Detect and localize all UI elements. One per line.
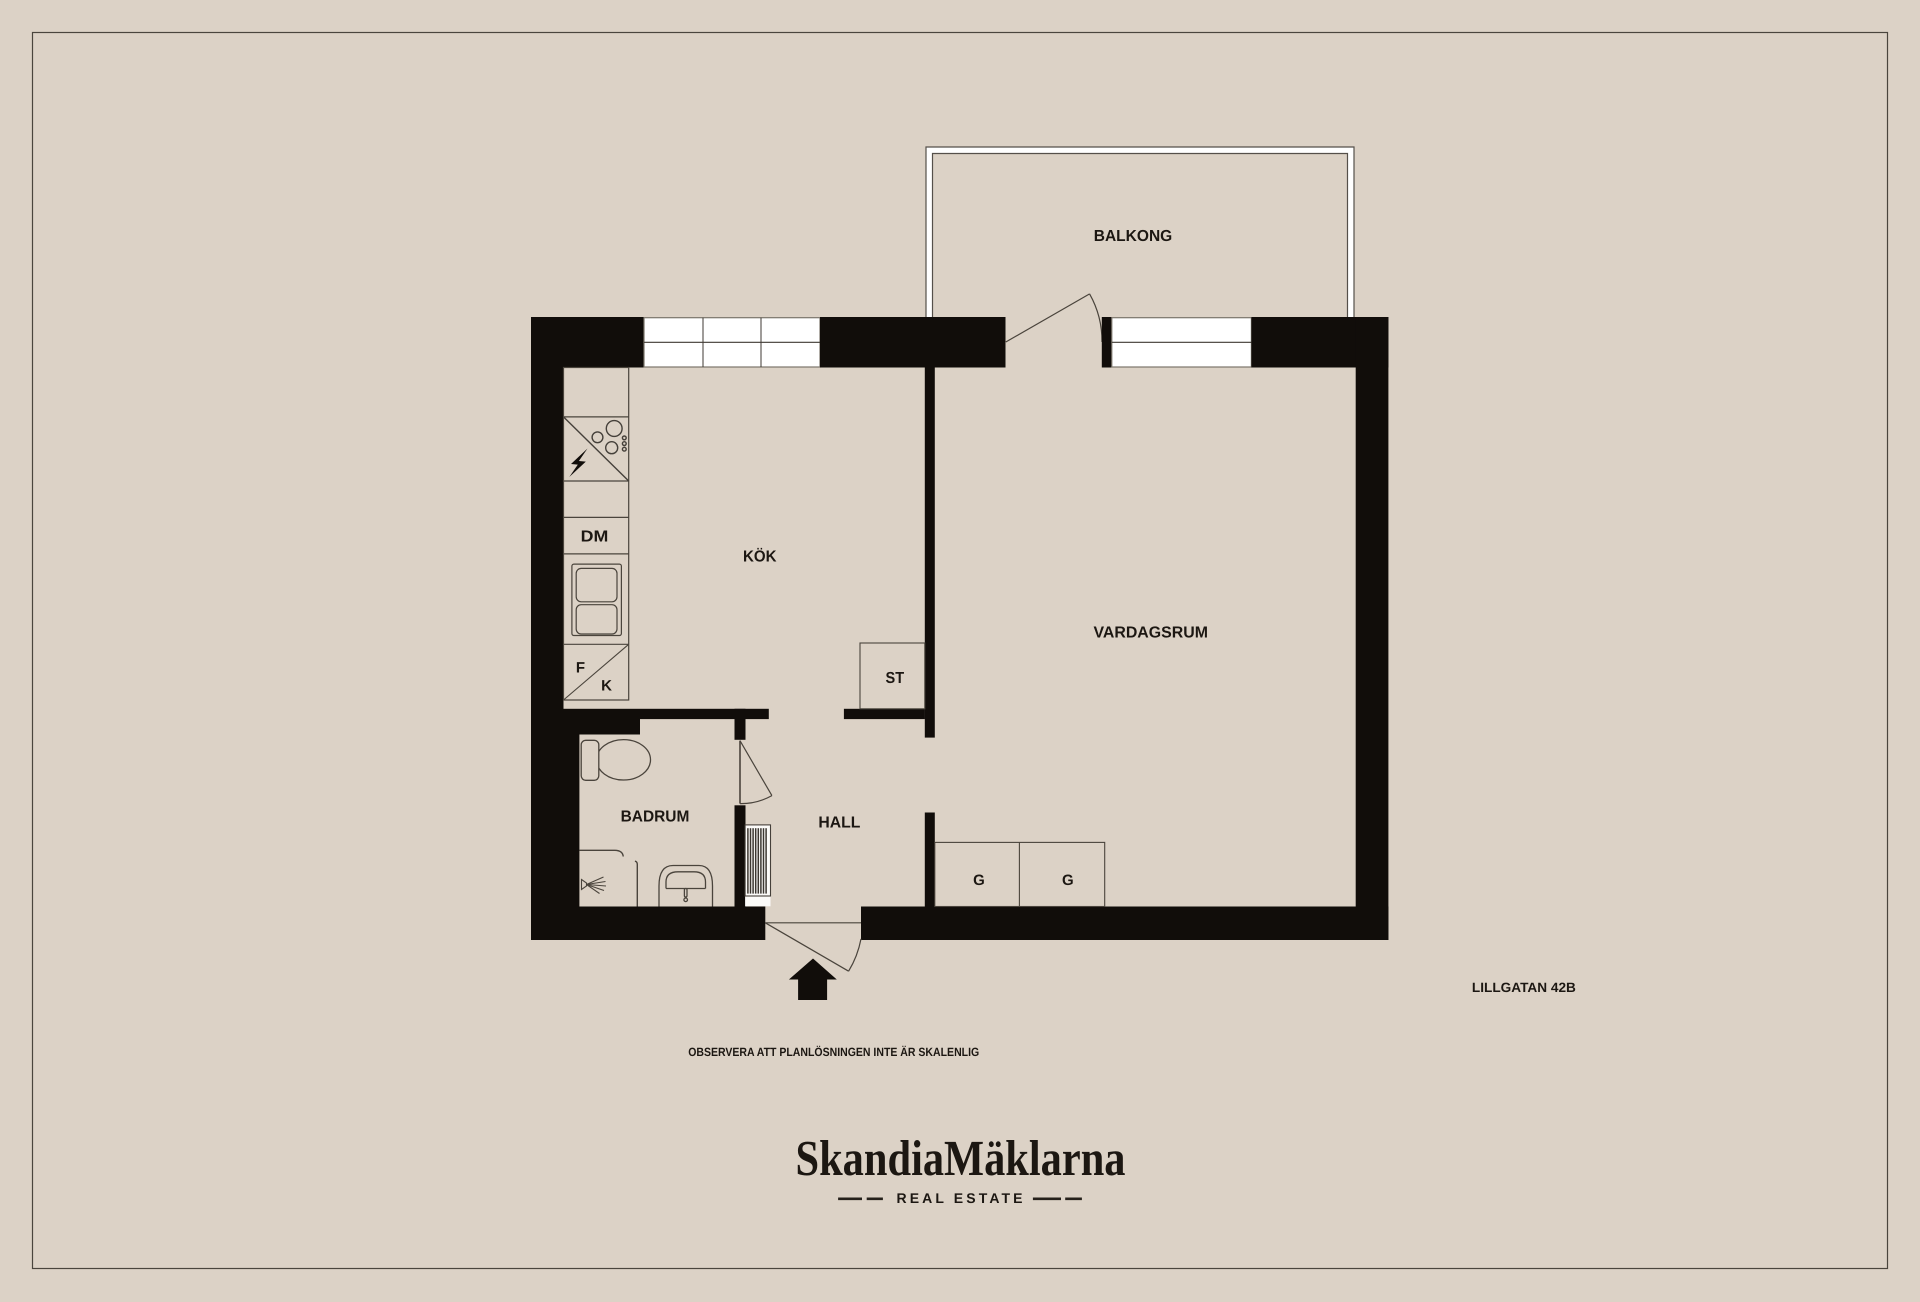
svg-text:BADRUM: BADRUM bbox=[621, 809, 690, 826]
svg-text:SkandiaMäklarna: SkandiaMäklarna bbox=[796, 1130, 1126, 1186]
svg-text:G: G bbox=[1062, 872, 1074, 889]
svg-text:ST: ST bbox=[886, 670, 905, 687]
svg-text:VARDAGSRUM: VARDAGSRUM bbox=[1093, 624, 1208, 641]
svg-text:OBSERVERA ATT PLANLÖSNINGEN IN: OBSERVERA ATT PLANLÖSNINGEN INTE ÄR SKAL… bbox=[688, 1045, 979, 1059]
svg-text:DM: DM bbox=[581, 529, 609, 546]
svg-text:F: F bbox=[576, 660, 585, 677]
svg-text:G: G bbox=[973, 872, 985, 889]
svg-text:K: K bbox=[601, 678, 612, 695]
svg-text:LILLGATAN 42B: LILLGATAN 42B bbox=[1472, 980, 1576, 995]
svg-text:REAL ESTATE: REAL ESTATE bbox=[897, 1190, 1023, 1206]
svg-text:KÖK: KÖK bbox=[743, 548, 777, 566]
svg-text:BALKONG: BALKONG bbox=[1094, 228, 1173, 245]
svg-text:HALL: HALL bbox=[818, 814, 860, 831]
